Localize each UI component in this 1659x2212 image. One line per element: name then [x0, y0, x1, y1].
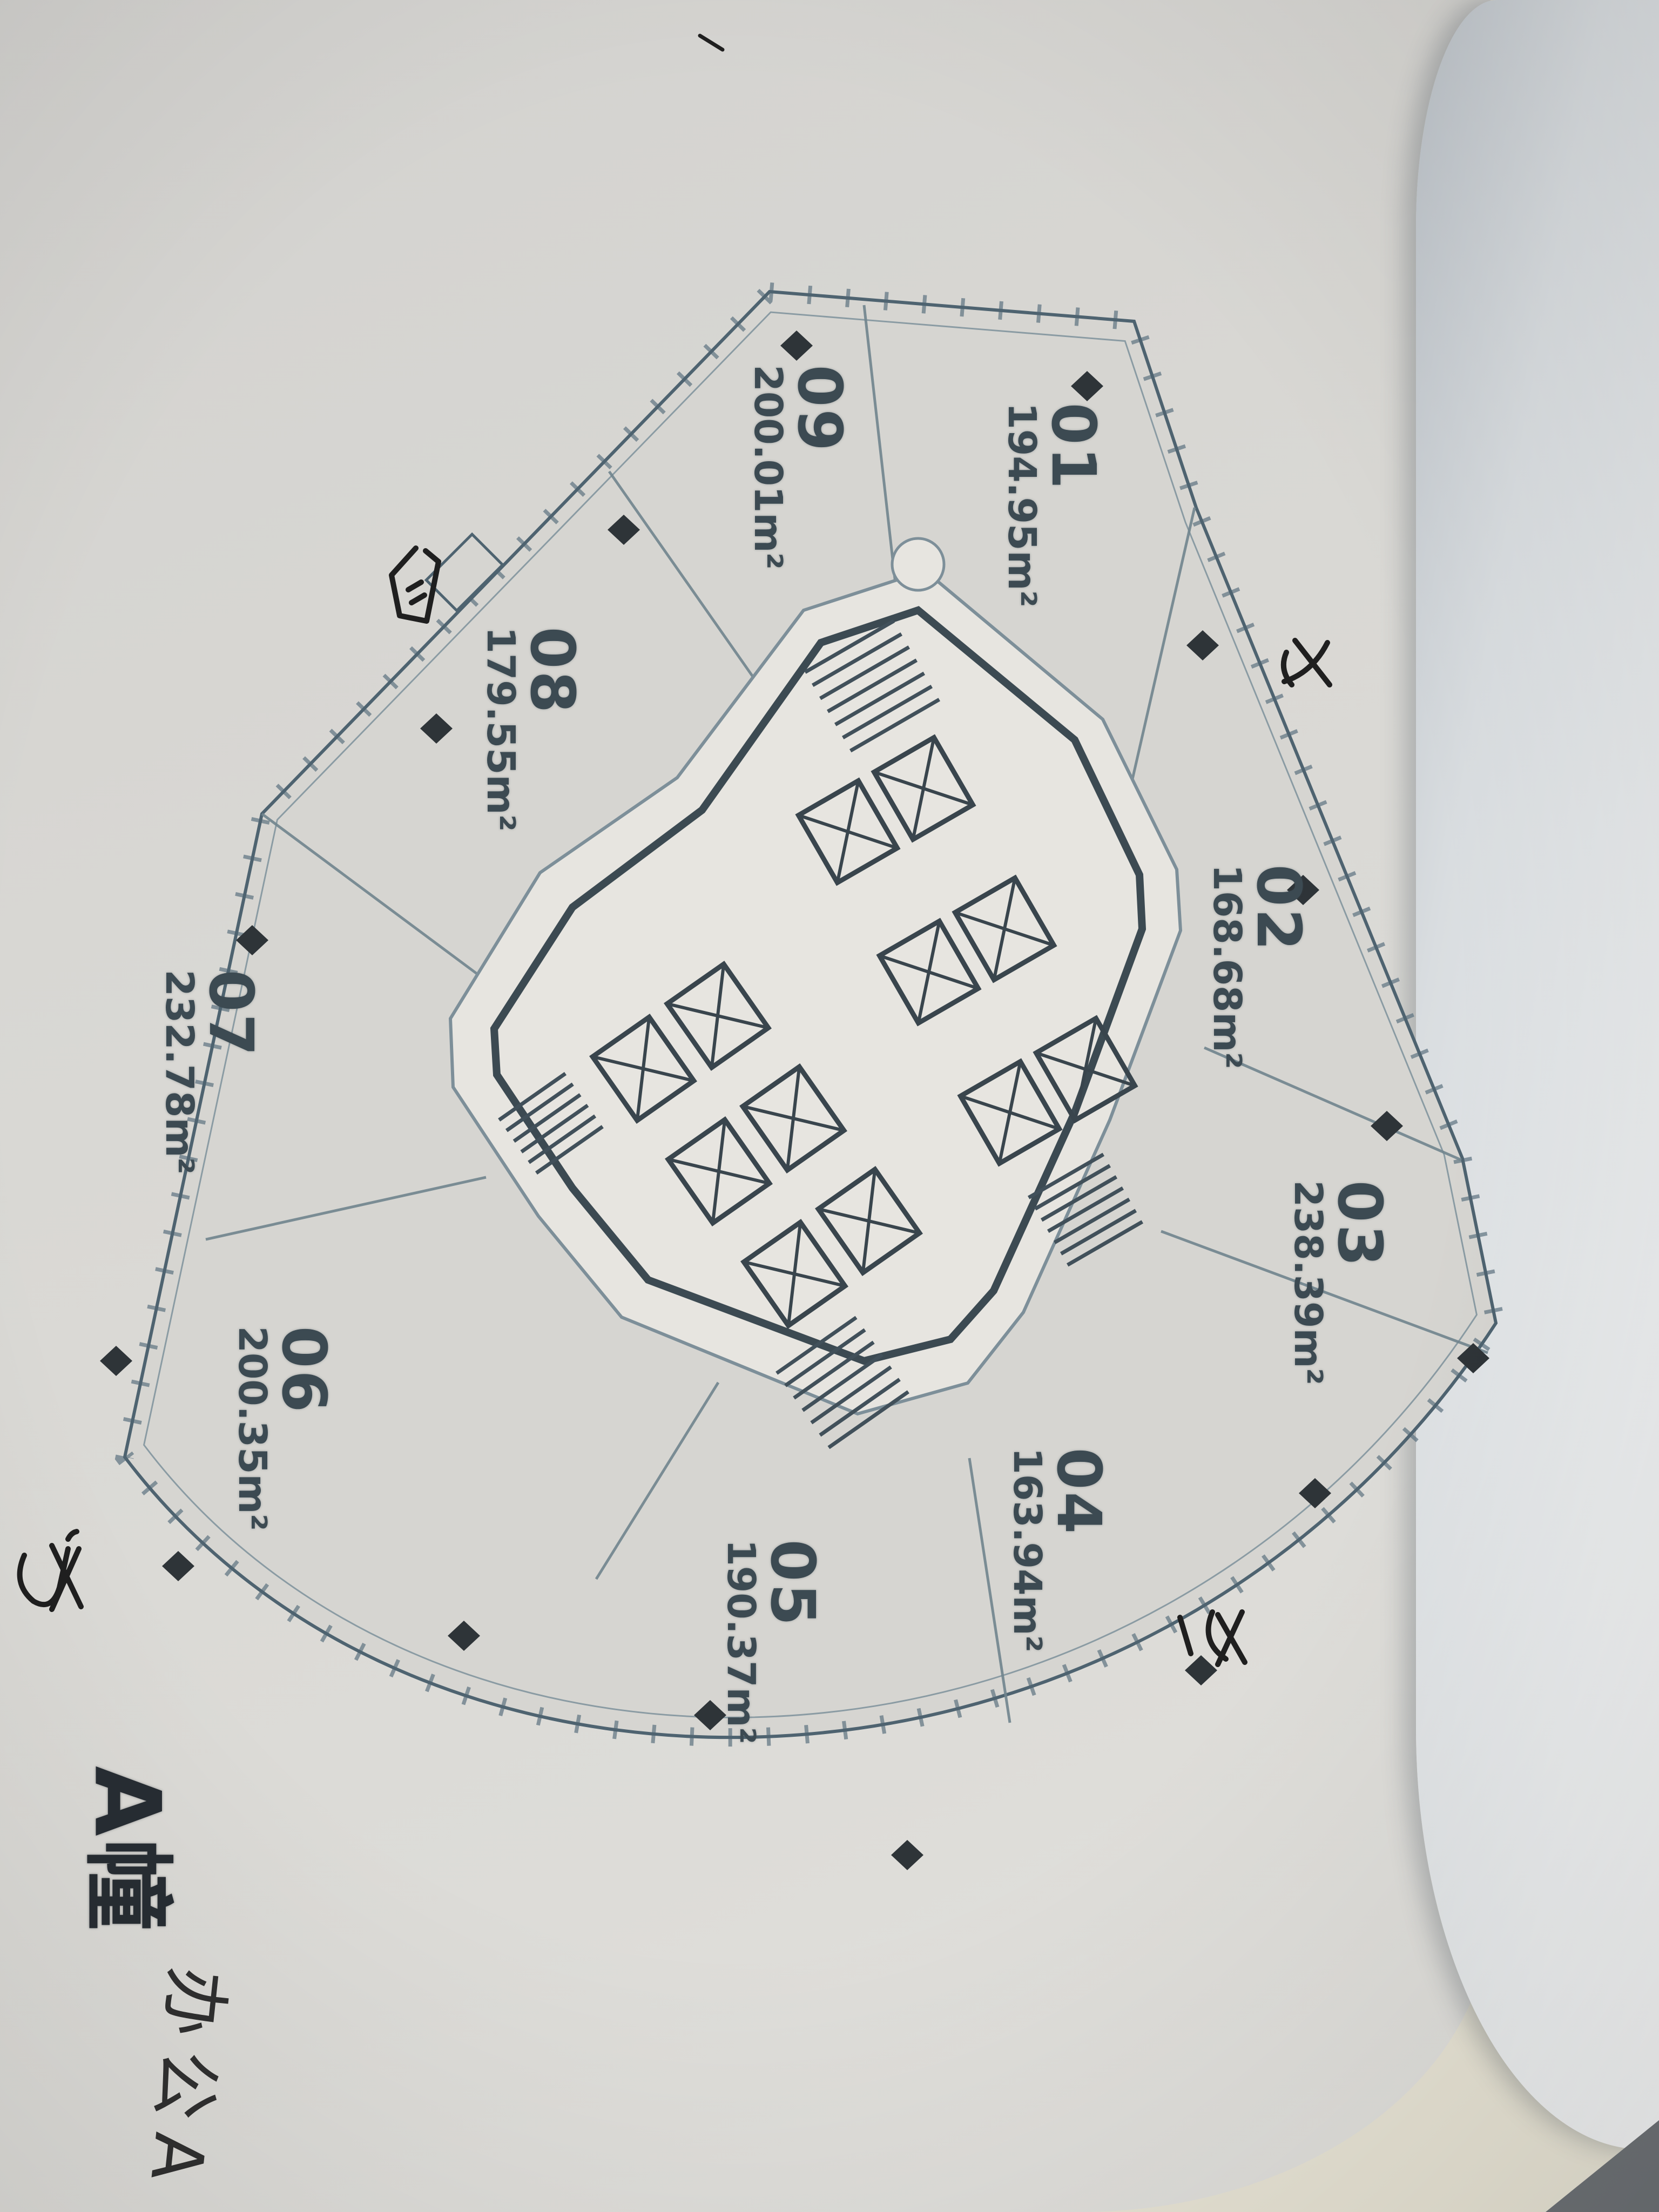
- unit-number: 03: [1328, 1180, 1391, 1385]
- unit-label-07: 07 232.78m²: [159, 969, 262, 1174]
- unit-label-01: 01 194.95m²: [1002, 402, 1104, 607]
- unit-number: 04: [1047, 1447, 1110, 1652]
- unit-number: 06: [272, 1326, 335, 1530]
- unit-area: 232.78m²: [159, 969, 199, 1174]
- pen-mark-top: [700, 36, 723, 50]
- unit-area: 168.68m²: [1207, 864, 1247, 1069]
- photographed-floor-plan-page: 01 194.95m² 02 168.68m² 03 238.39m² 04 1…: [0, 0, 1659, 2212]
- unit-label-02: 02 168.68m²: [1207, 864, 1310, 1069]
- unit-area: 190.37m²: [721, 1539, 761, 1744]
- unit-area: 163.94m²: [1007, 1447, 1047, 1652]
- unit-number: 01: [1042, 402, 1104, 607]
- unit-area: 179.55m²: [481, 626, 521, 831]
- unit-area: 200.35m²: [232, 1326, 272, 1530]
- unit-area: 200.01m²: [748, 365, 788, 569]
- unit-label-05: 05 190.37m²: [721, 1539, 824, 1744]
- unit-area: 238.39m²: [1288, 1180, 1328, 1385]
- unit-number: 07: [199, 969, 262, 1174]
- unit-number: 05: [761, 1539, 824, 1744]
- unit-number: 02: [1247, 864, 1310, 1069]
- handwritten-scribble-top-right: [1284, 640, 1330, 685]
- handwritten-scribble-right: [1180, 1612, 1245, 1664]
- core-entrance-door-arc: [892, 538, 944, 590]
- unit-number: 09: [788, 365, 851, 569]
- unit-area: 194.95m²: [1002, 402, 1042, 607]
- unit-label-09: 09 200.01m²: [748, 365, 851, 569]
- unit-label-04: 04 163.94m²: [1007, 1447, 1110, 1652]
- unit-label-06: 06 200.35m²: [232, 1326, 335, 1530]
- handwritten-scribble-bottom-left: [20, 1532, 81, 1609]
- unit-label-08: 08 179.55m²: [481, 626, 583, 831]
- building-label: A幢: [70, 1766, 201, 1933]
- unit-number: 08: [521, 626, 583, 831]
- unit-label-03: 03 238.39m²: [1288, 1180, 1391, 1385]
